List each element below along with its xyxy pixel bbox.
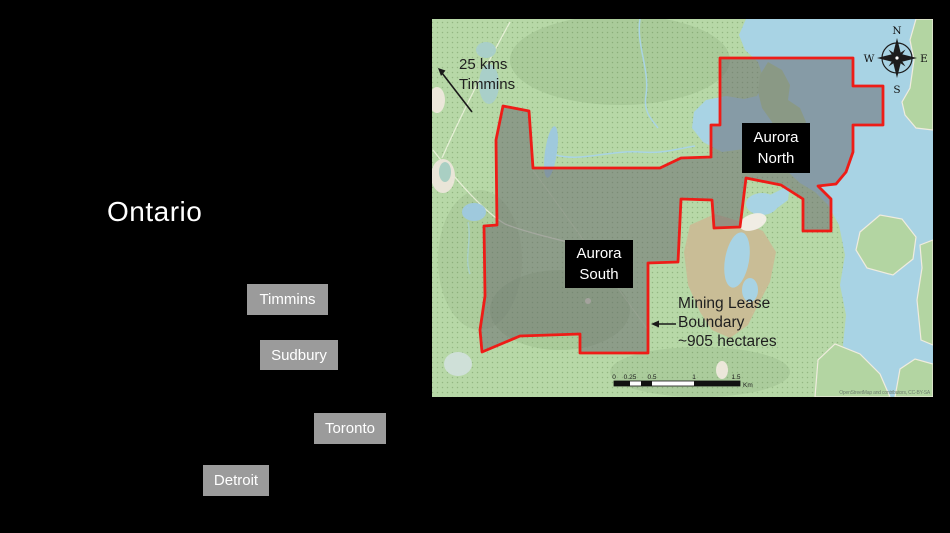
map-attribution: OpenStreetMap and contributors, CC-BY-SA (839, 390, 930, 396)
compass-e: E (920, 53, 928, 65)
project-map: N E S W 0 0.25 0.5 1 1.5 (432, 19, 933, 397)
distance-note-line1: 25 kms (459, 55, 515, 75)
city-badge-detroit: Detroit (203, 465, 269, 496)
scale-tick: 0 (612, 374, 616, 381)
city-badge-toronto: Toronto (314, 413, 386, 444)
aurora-north-line2: North (758, 148, 795, 169)
ontario-label: Ontario (107, 196, 202, 228)
scale-tick: 0.25 (624, 374, 637, 381)
slide: Ontario Timmins Sudbury Toronto Detroit (0, 0, 950, 533)
aurora-south-line2: South (579, 264, 618, 285)
city-badge-label: Toronto (325, 420, 375, 437)
scale-tick: 1.5 (731, 374, 740, 381)
aurora-north-line1: Aurora (753, 127, 798, 148)
aurora-south-line1: Aurora (576, 243, 621, 264)
compass-s: S (893, 84, 900, 96)
scale-tick: 1 (692, 374, 696, 381)
aurora-south-label: Aurora South (565, 240, 633, 288)
city-badge-timmins: Timmins (247, 284, 328, 315)
scale-unit: Km (743, 382, 753, 389)
city-badge-sudbury: Sudbury (260, 340, 338, 370)
lease-note-line2: Boundary (678, 313, 777, 332)
distance-note-line2: Timmins (459, 75, 515, 95)
distance-note: 25 kms Timmins (459, 55, 515, 95)
compass-w: W (864, 53, 875, 65)
lease-note-line1: Mining Lease (678, 294, 777, 313)
compass-n: N (892, 25, 901, 37)
city-badge-label: Detroit (214, 472, 258, 489)
city-badge-label: Sudbury (271, 347, 327, 364)
scale-tick: 0.5 (647, 374, 656, 381)
city-badge-label: Timmins (259, 291, 315, 308)
aurora-north-label: Aurora North (742, 123, 810, 173)
lease-note: Mining Lease Boundary ~905 hectares (678, 294, 777, 351)
lease-note-line3: ~905 hectares (678, 332, 777, 351)
